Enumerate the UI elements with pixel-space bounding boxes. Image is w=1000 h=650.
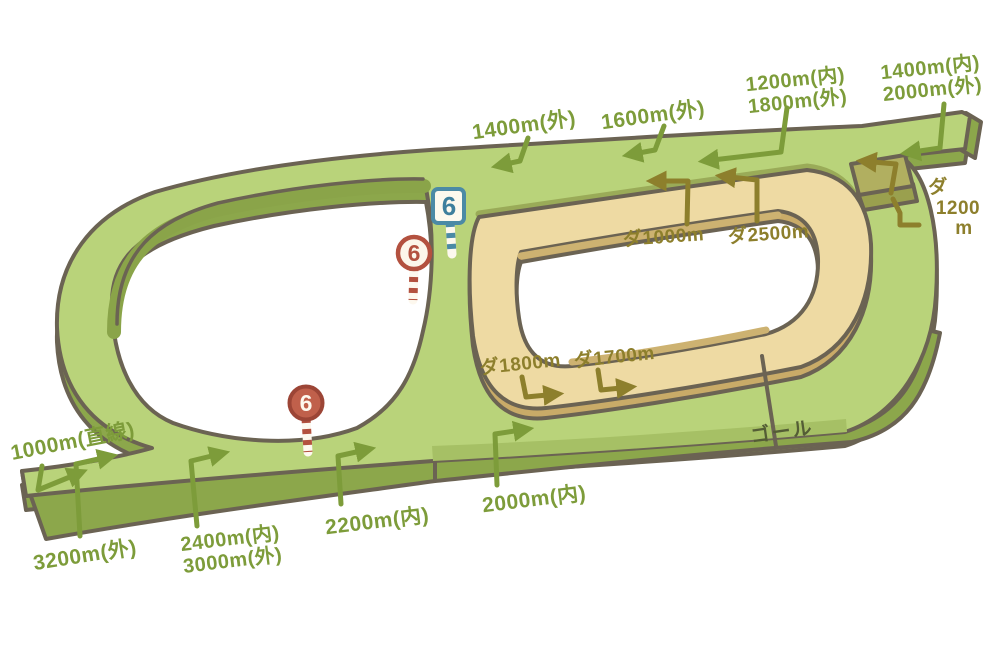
label-dirt-1200m-line2: 1200 xyxy=(936,198,980,219)
label-turf-1600m-outer: 1600m(外) xyxy=(600,96,707,134)
label-turf-2200m-inner: 2200m(内) xyxy=(324,503,431,540)
marker-post xyxy=(306,418,308,452)
racecourse-map: 1400m(外) 1600m(外) 1200m(内) 1800m(外) 1400… xyxy=(0,0,1000,650)
marker-number: 6 xyxy=(300,390,313,416)
label-dirt-1200m-line1: ダ xyxy=(928,175,948,198)
label-turf-3200m-outer: 3200m(外) xyxy=(31,535,138,575)
furlong-marker-turf-inner: 6 xyxy=(398,237,430,300)
marker-number: 6 xyxy=(442,191,456,221)
marker-number: 6 xyxy=(408,240,421,266)
label-dirt-1200m-line3: m xyxy=(955,218,972,239)
racecourse-svg: 1400m(外) 1600m(外) 1200m(内) 1800m(外) 1400… xyxy=(0,0,1000,650)
track-body xyxy=(22,112,981,539)
label-turf-1400m-outer: 1400m(外) xyxy=(471,106,578,144)
